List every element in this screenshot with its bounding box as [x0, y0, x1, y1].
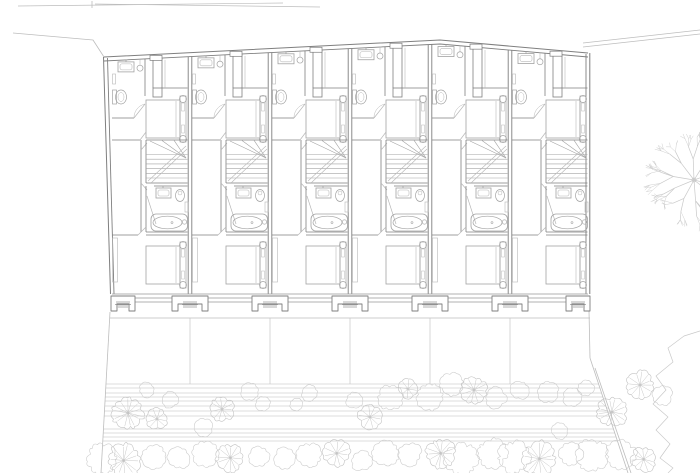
bedside-lamp: [580, 282, 587, 289]
toilet: [416, 190, 425, 202]
bathtub-basin: [473, 216, 502, 229]
door-leaf: [138, 227, 146, 235]
bathtub-drain: [251, 222, 253, 224]
bed-pillow: [582, 125, 585, 133]
bath-tap: [182, 220, 186, 224]
shrub-spoke: [468, 379, 474, 390]
bathtub-drain: [331, 222, 333, 224]
shrub-spoke: [532, 448, 540, 458]
tree-branch: [670, 147, 675, 152]
radiator: [585, 202, 588, 212]
shrub-spoke: [539, 459, 549, 467]
bed-pillow: [342, 271, 345, 279]
bedside-lamp: [580, 136, 587, 143]
shrub-spoke: [539, 459, 553, 460]
hedge-shrub: [352, 450, 373, 470]
planting-shrub: [255, 397, 270, 412]
tree-branch: [685, 139, 689, 147]
tree-branch: [681, 212, 685, 221]
double-bed-mattress: [546, 246, 580, 284]
tree-branch: [676, 152, 682, 164]
bedside-lamp: [420, 136, 427, 143]
tree-branch: [673, 198, 684, 203]
duct-shaft: [233, 88, 242, 97]
hedge-shrub: [575, 439, 608, 471]
hedge-shrub: [443, 442, 479, 473]
site-boundary: [13, 1, 700, 473]
unit-4: [352, 43, 428, 288]
wash-basin-bowl: [318, 190, 329, 196]
toilet-cistern: [353, 90, 357, 104]
toilet-bowl: [338, 191, 342, 195]
double-bed-mattress: [386, 246, 420, 284]
bed-pillow: [502, 271, 505, 279]
tree-branch: [691, 136, 693, 140]
bed-pillow: [262, 103, 265, 111]
shrub-spoke: [213, 404, 222, 409]
unit-2: [192, 51, 268, 288]
shrub-spoke: [441, 453, 451, 462]
toilet: [356, 90, 367, 104]
tree-branch: [694, 180, 696, 201]
stair-break-line: [388, 146, 426, 181]
tree-branch: [666, 203, 673, 204]
tree-branch: [696, 201, 697, 216]
shrub-spoke: [124, 460, 125, 473]
double-bed-mattress: [306, 246, 340, 284]
hedge-shrub: [192, 441, 219, 467]
toilet: [336, 190, 345, 202]
entry-recess: [470, 44, 482, 49]
tree-branch: [680, 212, 681, 220]
bedside-lamp: [180, 96, 187, 103]
shrub-spoke: [370, 417, 373, 428]
duct-shaft: [313, 88, 322, 97]
thicket: [653, 331, 700, 473]
wash-basin-bowl: [558, 190, 569, 196]
wardrobe: [433, 238, 438, 282]
bedside-lamp: [500, 242, 507, 249]
radiator: [185, 202, 188, 212]
toilet: [176, 190, 185, 202]
tree-branch: [676, 145, 677, 152]
radiator: [433, 74, 436, 84]
entry-recess: [390, 43, 402, 48]
toilet: [256, 190, 265, 202]
shrub-spoke: [474, 390, 478, 401]
planting-shrub: [486, 386, 508, 409]
toilet-cistern: [113, 90, 117, 104]
shrub-spoke: [474, 380, 476, 390]
bedside-lamp: [180, 282, 187, 289]
tree-branch: [665, 201, 673, 203]
shrub-spoke: [124, 445, 128, 460]
hedge-shrub: [477, 438, 508, 470]
pendant-light: [377, 53, 383, 59]
tree-large: [644, 132, 700, 231]
pendant-light: [137, 65, 143, 71]
tree-branch: [678, 220, 680, 224]
wash-basin: [278, 54, 294, 64]
door-leaf: [458, 227, 466, 235]
double-bed-mattress: [466, 100, 500, 138]
left-wall-inner: [108, 58, 115, 294]
shrub-spoke: [474, 385, 485, 390]
bathtub-basin: [313, 216, 342, 229]
double-bed-mattress: [386, 100, 420, 138]
shrub-spoke: [226, 447, 231, 458]
shrub-spoke: [431, 453, 441, 459]
bedside-lamp: [420, 96, 427, 103]
double-bed-mattress: [146, 246, 180, 284]
door-leaf: [540, 132, 546, 140]
double-bed-mattress: [546, 100, 580, 138]
bed-pillow: [262, 271, 265, 279]
hedge-shrub: [398, 443, 422, 467]
shrub-spoke: [219, 458, 231, 462]
toilet-bowl: [498, 191, 502, 195]
toilet-bowl: [518, 93, 524, 102]
hedge-shrub: [248, 446, 270, 466]
toilet-bowl: [578, 191, 582, 195]
top-edge-line: [95, 4, 320, 7]
bedside-lamp: [340, 96, 347, 103]
bed-pillow: [502, 249, 505, 257]
bathtub-basin: [553, 216, 582, 229]
hedge-shrub: [274, 447, 296, 469]
wash-basin: [358, 50, 374, 60]
bath-tap: [262, 220, 266, 224]
path-edge-right: [590, 358, 628, 473]
stair-break-line: [468, 146, 506, 181]
garden: [86, 318, 672, 473]
left-wall-outer: [104, 57, 111, 294]
tree-branch: [685, 220, 687, 226]
tree-branch: [676, 141, 677, 145]
shrub-spoke: [612, 407, 624, 412]
shrub-spoke: [428, 449, 441, 454]
unit-1: [112, 55, 188, 288]
tree-branch: [693, 159, 694, 180]
wash-basin: [118, 62, 134, 72]
bed-pillow: [262, 249, 265, 257]
shrub-spoke: [111, 459, 124, 460]
shrub-spoke: [632, 459, 644, 460]
tree-branch: [664, 188, 675, 194]
wardrobe: [193, 238, 198, 282]
shrub-spoke: [337, 442, 338, 453]
hedge-row: [86, 438, 655, 473]
bed-pillow: [422, 249, 425, 257]
wash-basin-bowl: [200, 60, 212, 66]
tree-branch: [660, 177, 673, 184]
bed-pillow: [582, 103, 585, 111]
shrub-spoke: [640, 385, 650, 391]
toilet: [116, 90, 127, 104]
planting-shrub: [290, 398, 303, 410]
bedside-lamp: [580, 242, 587, 249]
shrub-spoke: [337, 453, 340, 465]
wash-basin-bowl: [238, 190, 249, 196]
shrub-spoke: [230, 458, 238, 465]
planting-shrub: [652, 385, 673, 405]
bed-pillow: [342, 103, 345, 111]
wash-basin: [198, 58, 214, 68]
bed-pillow: [182, 271, 185, 279]
duct-shaft: [393, 88, 402, 97]
bedside-lamp: [420, 242, 427, 249]
bathtub-basin: [153, 216, 182, 229]
bathtub-drain: [491, 222, 493, 224]
bathtub-drain: [571, 222, 573, 224]
planting-shrub: [194, 418, 213, 437]
shrub-spoke: [365, 417, 370, 427]
tree-branch: [673, 177, 694, 181]
bed-pillow: [262, 125, 265, 133]
duct-shaft: [153, 88, 162, 97]
wash-basin-bowl: [440, 49, 452, 55]
wash-basin-bowl: [280, 56, 292, 62]
tree-branch: [697, 216, 700, 225]
stair-break-line: [228, 146, 266, 181]
shrub-spoke: [124, 456, 137, 461]
shrub-spoke: [636, 450, 643, 459]
bed-pillow: [502, 103, 505, 111]
tree-branch: [652, 167, 656, 168]
double-bed-mattress: [226, 246, 260, 284]
bath-tap: [502, 220, 506, 224]
hedge-shrub: [296, 443, 322, 468]
tree-branch: [661, 151, 670, 154]
hedge-shrub: [167, 447, 190, 469]
tree-branch: [684, 180, 694, 198]
bed-pillow: [182, 125, 185, 133]
door-leaf: [378, 227, 386, 235]
double-bed-mattress: [306, 100, 340, 138]
wardrobe: [513, 238, 518, 282]
shrub-spoke: [640, 385, 644, 396]
wash-basin-bowl: [360, 52, 372, 58]
double-bed-mattress: [466, 246, 500, 284]
bedside-lamp: [260, 242, 267, 249]
shrub-spoke: [429, 453, 441, 454]
pendant-light: [297, 57, 303, 63]
architectural-site-plan: [0, 0, 700, 473]
door-leaf: [538, 227, 546, 235]
bedside-lamp: [180, 136, 187, 143]
radiator: [513, 74, 516, 84]
thicket-edge: [653, 331, 700, 473]
planting-shrub: [140, 382, 154, 398]
toilet-bowl: [118, 93, 124, 102]
bath-tap: [422, 220, 426, 224]
tree-branch: [681, 163, 694, 180]
plan-canvas: [0, 0, 700, 473]
bedside-lamp: [500, 96, 507, 103]
stair-break-line: [308, 146, 346, 181]
toilet: [196, 90, 207, 104]
hedge-shrub: [371, 440, 399, 466]
entry-recess: [150, 55, 162, 60]
radiator: [113, 74, 116, 84]
shrub-spoke: [629, 385, 640, 390]
planting-shrub: [537, 381, 559, 402]
bed-pillow: [422, 125, 425, 133]
hedge-shrub: [141, 445, 166, 470]
wash-basin-bowl: [398, 190, 409, 196]
bathtub-basin: [393, 216, 422, 229]
planting-shrub: [241, 383, 258, 400]
toilet-bowl: [278, 93, 284, 102]
planting-shrub: [346, 392, 363, 408]
door-leaf: [140, 132, 146, 140]
road-edge-top-right: [583, 30, 700, 43]
shrub-spoke: [113, 460, 124, 464]
wash-basin: [518, 54, 534, 64]
door-leaf: [380, 132, 386, 140]
bath-tap: [342, 220, 346, 224]
planting-shrub: [563, 388, 582, 407]
bedside-lamp: [180, 242, 187, 249]
toilet-bowl: [178, 191, 182, 195]
radiator: [425, 202, 428, 212]
pendant-light: [457, 52, 463, 58]
bedside-lamp: [340, 136, 347, 143]
unit-6: [512, 51, 588, 288]
tree-branch: [693, 147, 697, 159]
shrub-spoke: [335, 453, 337, 463]
bed-pillow: [342, 125, 345, 133]
tree-branch: [661, 172, 673, 176]
shrub-spoke: [221, 450, 231, 458]
bed-pillow: [582, 271, 585, 279]
shrub-spoke: [369, 406, 370, 417]
tree-branch: [681, 198, 684, 211]
tree-branch: [694, 162, 700, 180]
shrub-spoke: [217, 457, 230, 458]
shrub-spoke: [224, 458, 230, 468]
radiator: [353, 74, 356, 84]
rear-facade: [111, 296, 590, 311]
hedge-shrub: [558, 442, 583, 466]
entry-recess: [230, 51, 242, 56]
boundary-top-left: [13, 33, 104, 57]
door-leaf: [220, 132, 226, 140]
stair-break-line: [148, 146, 186, 181]
door-leaf: [218, 227, 226, 235]
door-leaf: [298, 227, 306, 235]
bed-pillow: [422, 103, 425, 111]
bed-pillow: [422, 271, 425, 279]
pendant-light: [537, 59, 543, 65]
bedside-lamp: [500, 136, 507, 143]
entry-recess: [310, 47, 322, 52]
unit-3: [272, 47, 348, 288]
road-edge-top-right: [583, 34, 700, 47]
bedside-lamp: [580, 96, 587, 103]
toilet-cistern: [273, 90, 277, 104]
toilet-cistern: [433, 90, 437, 104]
toilet-bowl: [418, 191, 422, 195]
shrub-spoke: [637, 375, 640, 385]
toilet: [496, 190, 505, 202]
shrub-spoke: [632, 385, 640, 394]
radiator: [193, 74, 196, 84]
door-leaf: [300, 132, 306, 140]
wash-basin: [438, 47, 454, 57]
tree-branch: [689, 147, 694, 159]
radiator: [273, 74, 276, 84]
bedside-lamp: [420, 282, 427, 289]
toilet: [436, 90, 447, 104]
shrub-spoke: [437, 443, 441, 453]
tree-branch: [651, 195, 656, 196]
bedside-lamp: [260, 96, 267, 103]
stair-break-line: [548, 146, 586, 181]
tree-branch: [675, 180, 694, 188]
pendant-light: [217, 61, 223, 67]
bed-pillow: [502, 125, 505, 133]
tree-branch: [686, 134, 688, 139]
bed-pillow: [582, 249, 585, 257]
unit-5: [432, 44, 508, 288]
toilet-bowl: [438, 93, 444, 102]
wash-basin-bowl: [478, 190, 489, 196]
duct-shaft: [553, 88, 562, 97]
wash-basin-bowl: [158, 190, 169, 196]
door-leaf: [460, 132, 466, 140]
toilet-bowl: [358, 93, 364, 102]
radiator: [345, 202, 348, 212]
duct-shaft: [473, 88, 482, 97]
shrub-spoke: [441, 453, 452, 454]
toilet: [276, 90, 287, 104]
double-bed-mattress: [226, 100, 260, 138]
toilet: [576, 190, 585, 202]
radiator: [505, 202, 508, 212]
boundary-left: [101, 312, 110, 473]
shrub-spoke: [639, 385, 640, 397]
bed-pillow: [182, 103, 185, 111]
toilet-bowl: [258, 191, 262, 195]
double-bed-mattress: [146, 100, 180, 138]
bedside-lamp: [340, 242, 347, 249]
wash-basin-bowl: [520, 56, 532, 62]
bedside-lamp: [260, 136, 267, 143]
wash-basin-bowl: [120, 64, 132, 70]
bathtub-basin: [233, 216, 262, 229]
bathtub-drain: [411, 222, 413, 224]
toilet-bowl: [198, 93, 204, 102]
radiator: [265, 202, 268, 212]
tree-branch: [670, 154, 682, 163]
bedside-lamp: [340, 282, 347, 289]
bathtub-drain: [171, 222, 173, 224]
planting-shrub: [162, 391, 178, 408]
toilet-cistern: [513, 90, 517, 104]
shrub-spoke: [230, 458, 241, 459]
wardrobe: [353, 238, 358, 282]
wardrobe: [273, 238, 278, 282]
toilet-cistern: [193, 90, 197, 104]
bed-pillow: [182, 249, 185, 257]
shrub-spoke: [230, 458, 235, 469]
toilet: [516, 90, 527, 104]
bed-pillow: [342, 249, 345, 257]
tree-branch: [663, 149, 669, 154]
entry-recess: [550, 51, 562, 56]
tree-branch: [670, 143, 671, 147]
